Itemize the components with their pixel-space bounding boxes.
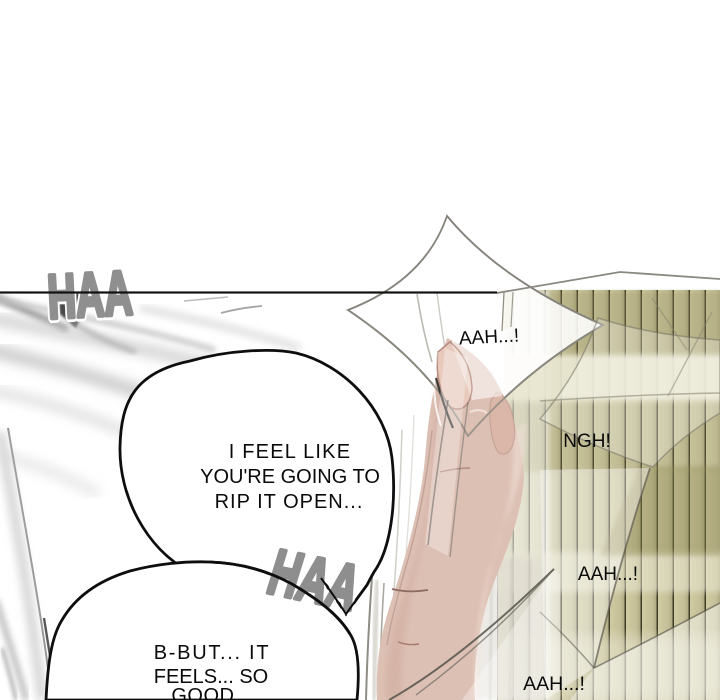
svg-text:I FEEL LIKE: I FEEL LIKE xyxy=(229,441,352,463)
svg-text:AAH...!: AAH...! xyxy=(578,564,638,585)
svg-text:AAH...!: AAH...! xyxy=(458,325,519,349)
svg-text:NGH!: NGH! xyxy=(563,431,611,452)
svg-text:RIP IT OPEN...: RIP IT OPEN... xyxy=(215,491,364,513)
svg-text:AAH...!: AAH...! xyxy=(523,673,585,695)
svg-text:YOU'RE GOING TO: YOU'RE GOING TO xyxy=(200,466,380,488)
svg-text:B-BUT... IT: B-BUT... IT xyxy=(154,642,270,664)
svg-text:GOOD...: GOOD... xyxy=(171,685,252,700)
svg-text:HAA: HAA xyxy=(46,258,134,332)
